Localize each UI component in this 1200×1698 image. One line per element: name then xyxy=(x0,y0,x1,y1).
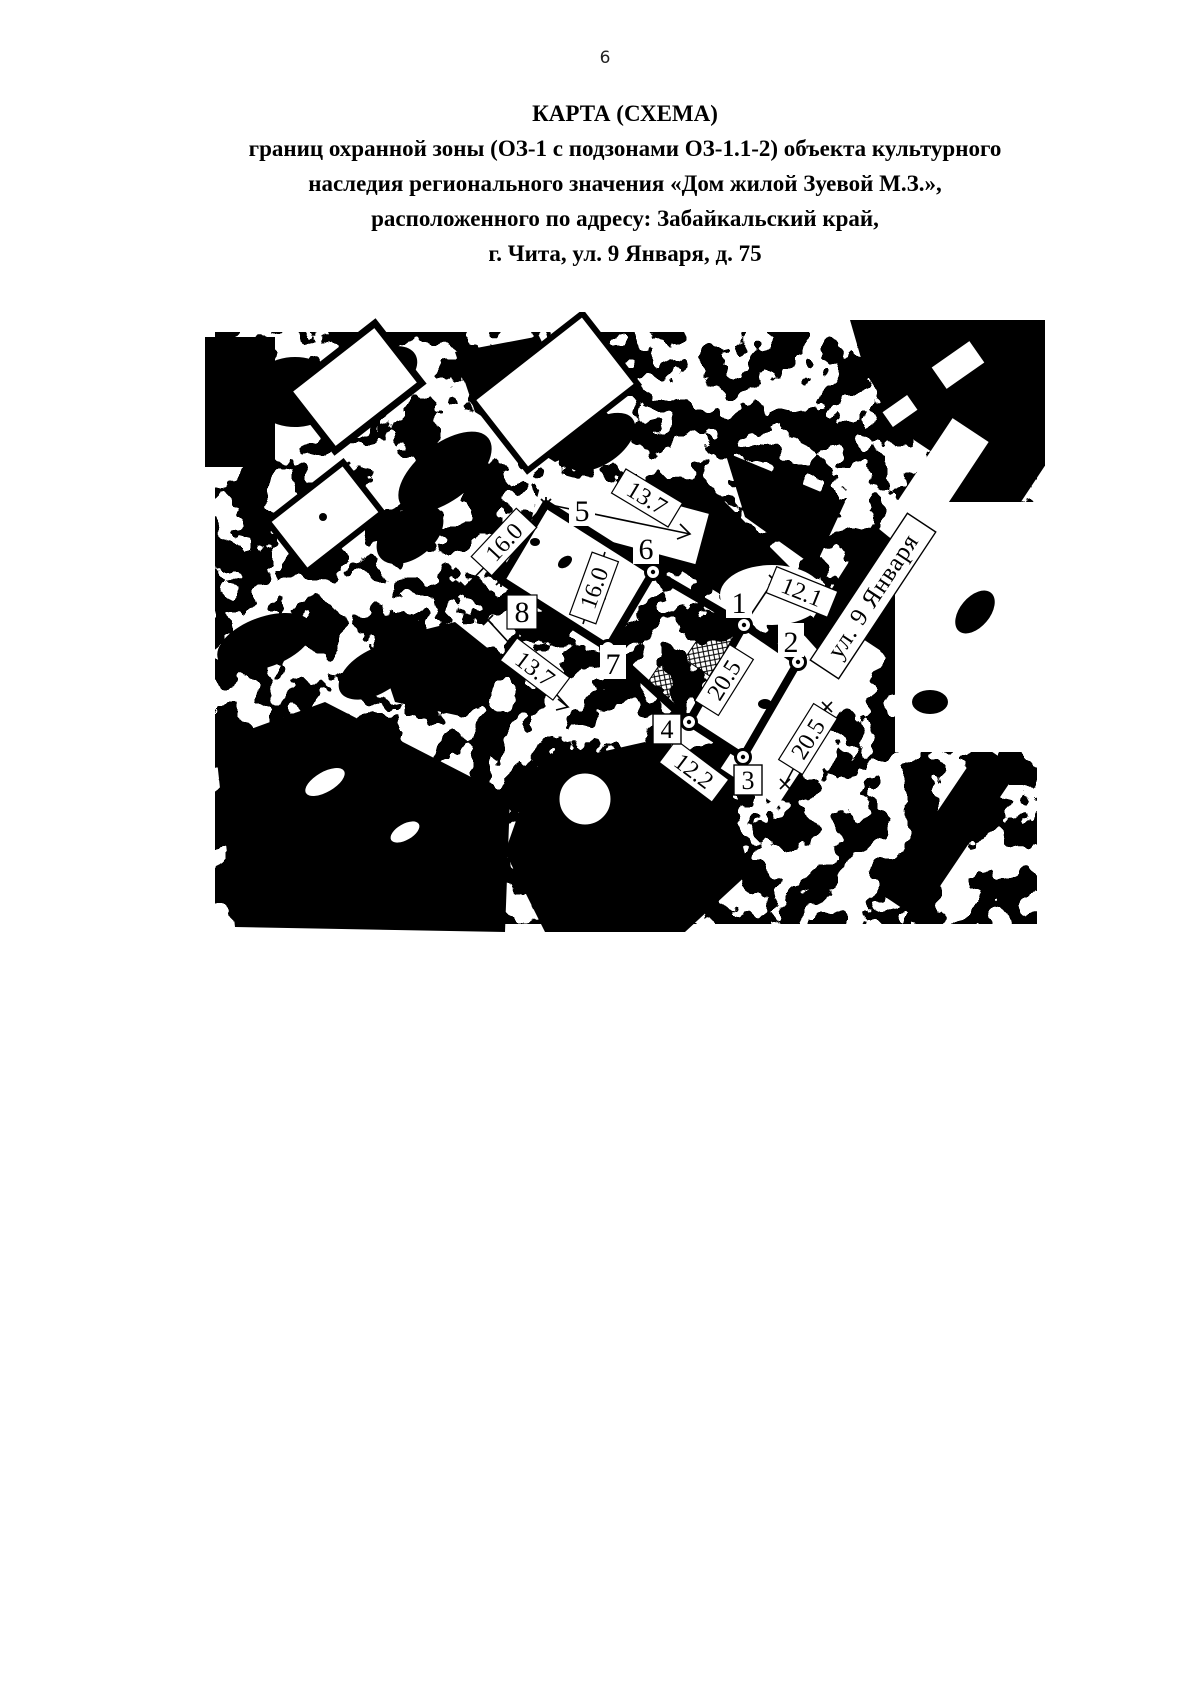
point-label-6: 6 xyxy=(633,530,659,566)
svg-text:5: 5 xyxy=(575,495,590,528)
point-marker-4 xyxy=(682,715,697,730)
point-label-2: 2 xyxy=(778,623,804,659)
point-marker-6 xyxy=(646,565,661,580)
svg-text:1: 1 xyxy=(732,587,747,620)
point-label-8: 8 xyxy=(507,595,537,629)
point-label-3: 3 xyxy=(734,765,762,795)
point-label-5: 5 xyxy=(569,492,595,528)
svg-text:8: 8 xyxy=(515,596,530,629)
map-image: 13.7 16.0 16.0 xyxy=(205,312,1045,932)
svg-text:3: 3 xyxy=(742,766,755,795)
svg-text:4: 4 xyxy=(661,715,674,744)
svg-text:7: 7 xyxy=(606,648,621,681)
point-marker-3 xyxy=(736,750,751,765)
point-label-1: 1 xyxy=(726,584,752,620)
title-line-1: КАРТА (СХЕМА) xyxy=(50,96,1200,131)
title-line-5: г. Чита, ул. 9 Января, д. 75 xyxy=(50,236,1200,271)
svg-text:2: 2 xyxy=(784,626,799,659)
map-title: КАРТА (СХЕМА) границ охранной зоны (ОЗ-1… xyxy=(50,96,1200,271)
map-svg: 13.7 16.0 16.0 xyxy=(205,312,1045,932)
page-number: 6 xyxy=(0,48,1200,68)
point-label-7: 7 xyxy=(600,645,626,681)
svg-text:6: 6 xyxy=(639,533,654,566)
title-line-2: границ охранной зоны (ОЗ-1 с подзонами О… xyxy=(50,131,1200,166)
point-label-4: 4 xyxy=(653,714,681,744)
title-line-4: расположенного по адресу: Забайкальский … xyxy=(50,201,1200,236)
title-line-3: наследия регионального значения «Дом жил… xyxy=(50,166,1200,201)
document-page: 6 КАРТА (СХЕМА) границ охранной зоны (ОЗ… xyxy=(0,0,1200,1698)
